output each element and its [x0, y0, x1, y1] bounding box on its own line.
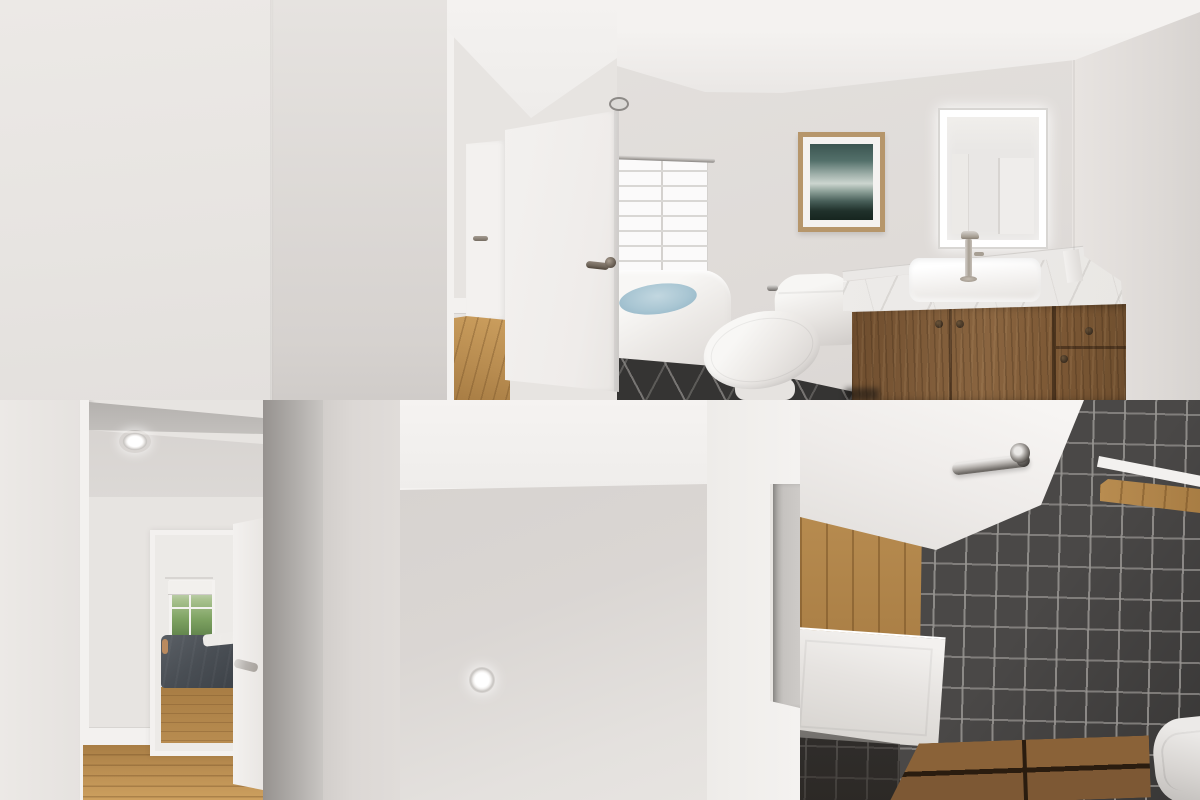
render-collage	[0, 0, 1200, 800]
headboard-sliver	[162, 639, 168, 654]
open-bathroom-door	[505, 110, 619, 392]
doorway-recess	[770, 484, 800, 708]
hallway-ceiling	[89, 422, 263, 500]
ceiling-plane	[400, 484, 707, 800]
interior-door	[466, 140, 507, 320]
tile-bathroom-top-down	[800, 400, 1200, 800]
ceiling-soffit-band	[89, 402, 263, 434]
tile-hallway-to-bedroom	[0, 400, 400, 800]
left-wall	[0, 400, 83, 800]
framed-forest-print	[798, 132, 885, 232]
mirror-reflection-door	[998, 158, 1034, 234]
bedroom-wood-floor	[161, 687, 239, 743]
led-backlit-mirror	[938, 108, 1048, 249]
tile-bathroom-panorama	[0, 0, 1200, 400]
door-jamb	[447, 24, 454, 400]
cabinet-knob	[956, 320, 964, 328]
far-right-wall	[323, 400, 400, 800]
bath-water	[617, 279, 698, 318]
door-handle	[473, 236, 488, 241]
door-edge	[614, 110, 619, 392]
wall-corner-line	[1073, 60, 1075, 250]
roller-shade	[168, 581, 212, 595]
wall-corner-line	[270, 0, 274, 400]
mirror-reflection-ceiling	[947, 117, 1039, 151]
toilet-flush-lever	[767, 285, 778, 291]
drawer-seam	[1056, 346, 1126, 349]
hallway-wood-floor	[454, 312, 510, 400]
opening-frame	[80, 400, 89, 800]
tile-ceiling-view	[400, 400, 800, 800]
bed-gray-duvet	[161, 635, 239, 688]
bathroom	[617, 0, 1200, 400]
tub-apron-panel	[800, 627, 946, 747]
mirror-reflection-wall	[952, 154, 969, 234]
curtain-rod	[165, 577, 213, 579]
recessed-light	[609, 97, 629, 111]
faucet-handle	[974, 252, 984, 256]
faucet-base	[960, 276, 977, 282]
forest-print-image	[810, 144, 873, 220]
door-lever-rosette	[605, 257, 616, 268]
doorway-header	[447, 0, 617, 120]
recessed-light	[469, 667, 495, 693]
door-lever-rosette	[1010, 443, 1030, 463]
recessed-light	[119, 430, 151, 453]
open-door	[233, 518, 263, 790]
blank-wall-left	[0, 0, 272, 400]
faucet-spout	[961, 231, 979, 239]
shadowed-right-wall	[263, 400, 323, 800]
walnut-vanity-cabinet	[852, 302, 1126, 400]
cabinet-door-seam	[949, 308, 952, 400]
teak-bath-mat	[885, 735, 1151, 800]
blank-wall-right	[272, 0, 447, 400]
cabinet-knob	[1060, 355, 1068, 363]
cabinet-knob	[935, 320, 943, 328]
drawer-knob	[1085, 327, 1093, 335]
window-mullion	[172, 607, 212, 609]
faucet-stem	[965, 238, 972, 278]
cabinet-divider-seam	[1052, 306, 1056, 400]
vanity-floor-shadow	[845, 388, 879, 400]
